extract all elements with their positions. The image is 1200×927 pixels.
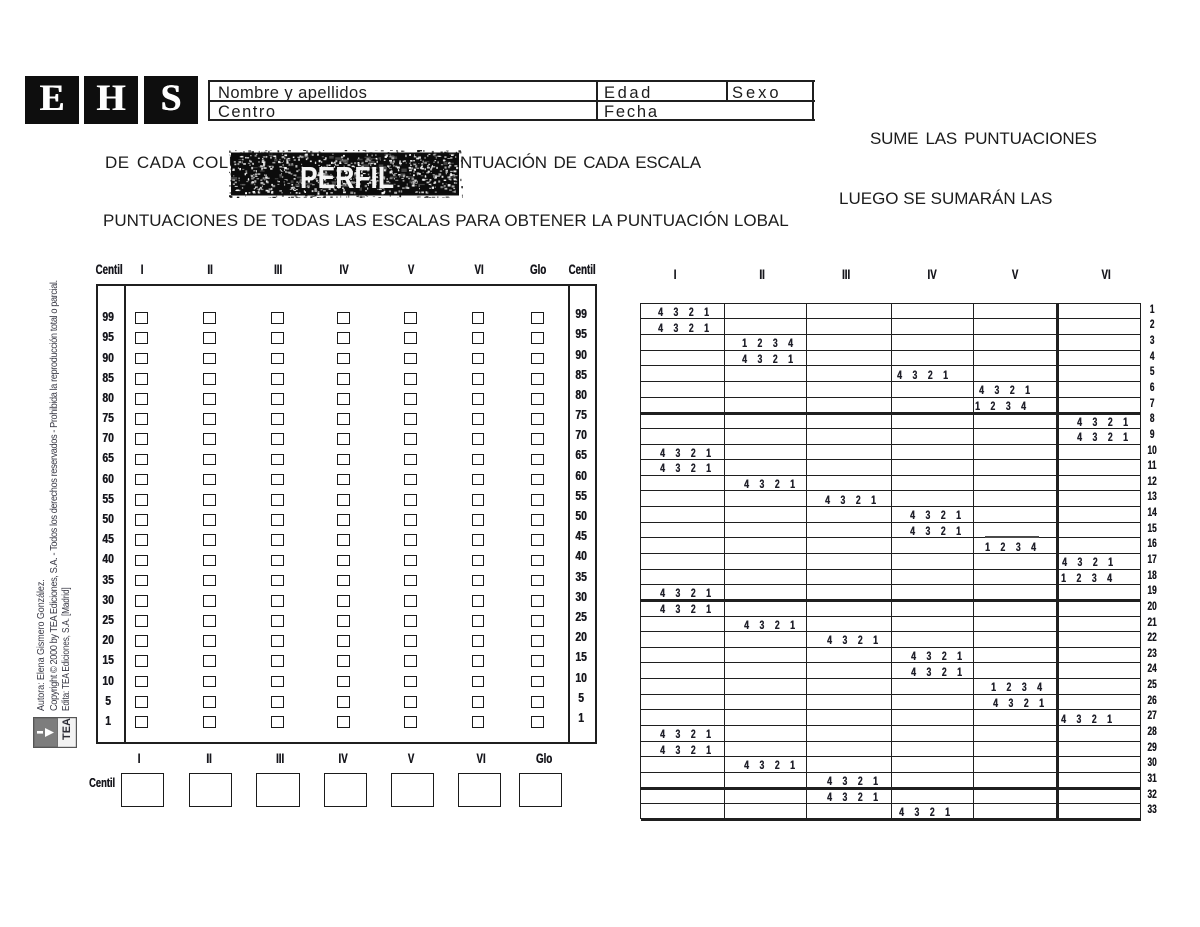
svg-text:PERFIL: PERFIL — [300, 160, 394, 195]
